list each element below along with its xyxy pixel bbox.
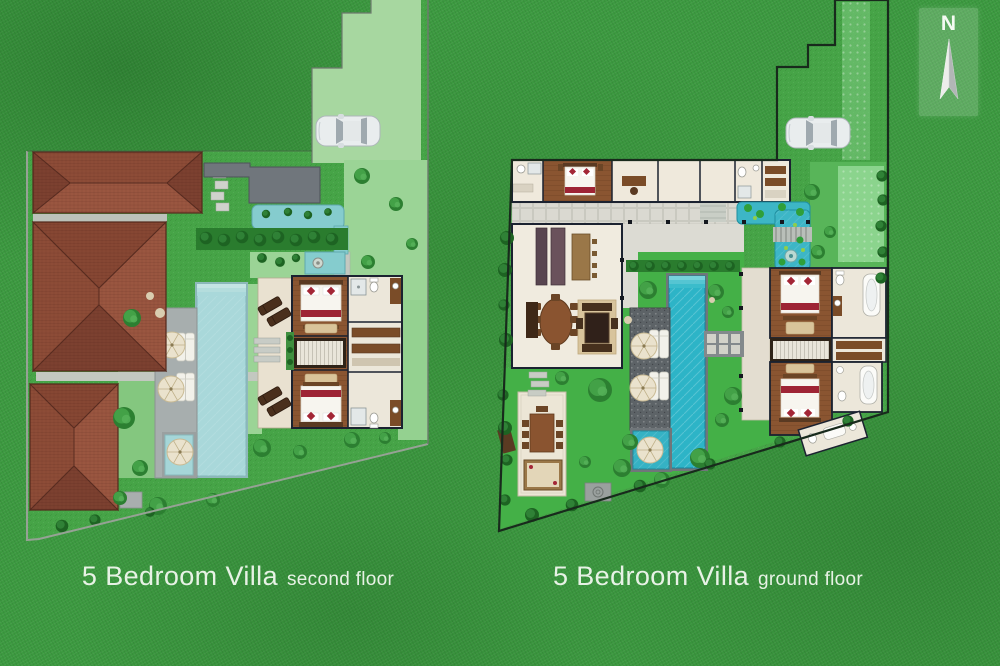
pool-area bbox=[155, 282, 248, 478]
veranda bbox=[742, 268, 770, 420]
entry-steps bbox=[700, 200, 726, 222]
stone bbox=[709, 297, 715, 303]
table bbox=[530, 414, 554, 452]
staircase bbox=[294, 338, 346, 368]
living-kitchen bbox=[512, 224, 622, 368]
kitchen-counter bbox=[551, 228, 565, 285]
east-wing bbox=[770, 268, 886, 456]
rug bbox=[786, 364, 814, 373]
stone bbox=[624, 316, 632, 324]
label-ground-floor: 5 Bedroom Villa ground floor bbox=[508, 561, 908, 592]
plan-ground-floor bbox=[497, 0, 888, 531]
car bbox=[316, 114, 380, 148]
desk bbox=[622, 176, 646, 186]
crossing-path bbox=[704, 331, 744, 357]
plan-second-floor bbox=[27, 0, 428, 540]
umbrella bbox=[630, 375, 656, 401]
wardrobe bbox=[765, 166, 786, 198]
umbrella bbox=[167, 439, 193, 465]
villa-title: 5 Bedroom Villa bbox=[82, 561, 278, 592]
umbrella bbox=[158, 376, 184, 402]
rug bbox=[305, 324, 337, 333]
rug bbox=[305, 374, 337, 383]
daybed bbox=[524, 460, 562, 490]
bridge bbox=[773, 227, 812, 242]
console bbox=[526, 302, 538, 338]
umbrella bbox=[631, 333, 657, 359]
hedge bbox=[626, 260, 740, 272]
kitchen-island bbox=[572, 234, 590, 280]
car bbox=[786, 116, 850, 150]
bed bbox=[779, 271, 821, 320]
staircase bbox=[770, 338, 832, 362]
villa-title: 5 Bedroom Villa bbox=[553, 561, 749, 592]
floor-subtitle: second floor bbox=[287, 569, 394, 591]
compass: N bbox=[919, 8, 978, 116]
terrace bbox=[620, 224, 744, 252]
stepping-stones bbox=[254, 338, 280, 362]
rug bbox=[786, 322, 814, 334]
lounge-set bbox=[576, 300, 618, 354]
north-arrow-icon bbox=[932, 37, 966, 103]
site-plan-image: N 5 Bedroom Villa second floor 5 Bedroom… bbox=[0, 0, 1000, 666]
hip-roof-north bbox=[33, 152, 202, 213]
bed bbox=[299, 382, 343, 427]
compass-north-label: N bbox=[941, 13, 956, 34]
chair bbox=[630, 187, 638, 195]
bed bbox=[779, 374, 821, 422]
stone bbox=[155, 308, 165, 318]
kitchen-counter bbox=[536, 228, 547, 285]
stone bbox=[146, 292, 154, 300]
label-second-floor: 5 Bedroom Villa second floor bbox=[38, 561, 438, 592]
floor-subtitle: ground floor bbox=[758, 569, 863, 591]
walkway bbox=[33, 214, 167, 222]
bedroom-wing bbox=[254, 276, 402, 428]
umbrella bbox=[637, 437, 663, 463]
north-wing bbox=[512, 160, 790, 202]
hip-roof-south bbox=[30, 384, 118, 510]
stepping-stones bbox=[528, 372, 549, 396]
